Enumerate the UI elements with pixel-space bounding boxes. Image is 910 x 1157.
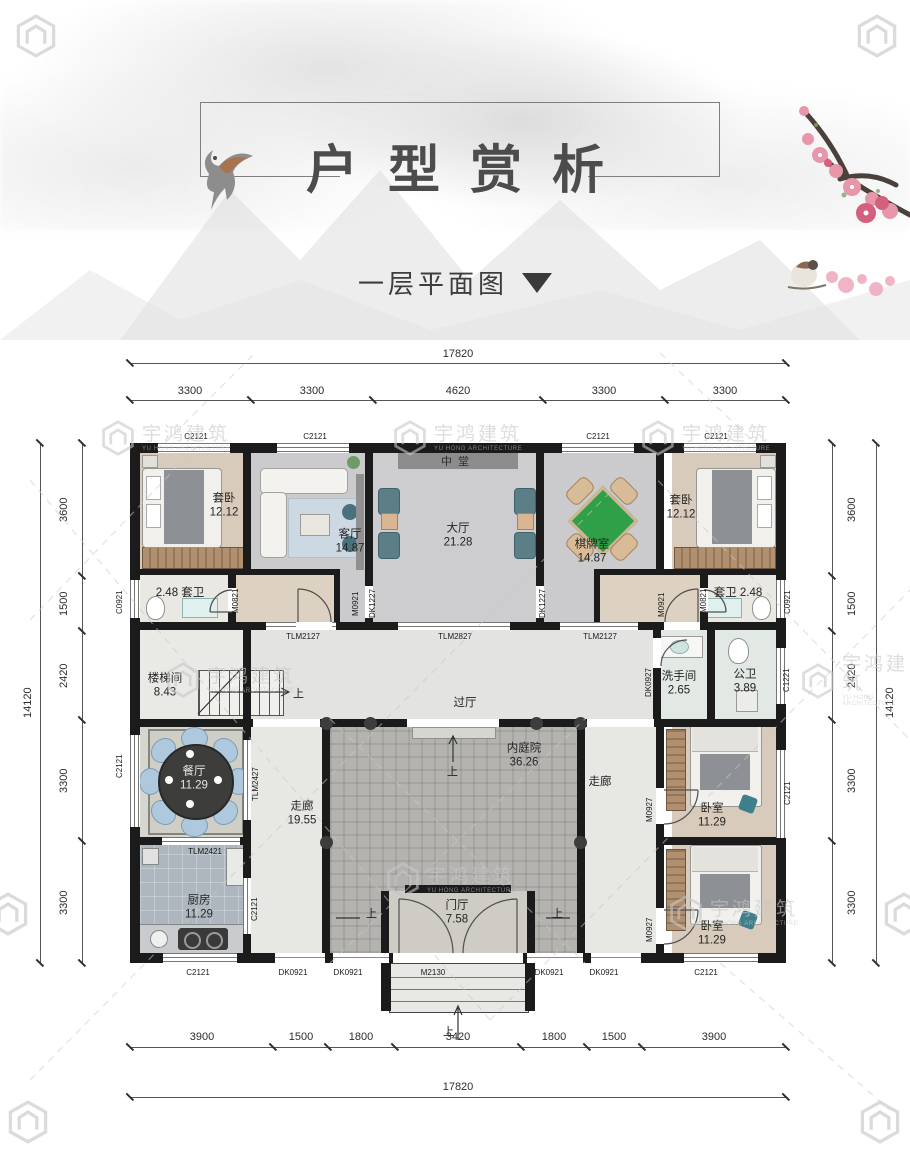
room-label-kitchen: 厨房11.29 <box>185 894 213 923</box>
slide-door-TLM2827 <box>398 622 510 630</box>
tag-door-DK0927: DK0927 <box>644 668 653 697</box>
door-gap-DK0927 <box>653 638 661 668</box>
wardrobe-right <box>674 547 776 569</box>
column <box>364 717 377 730</box>
tag-window-C2121: C2121 <box>694 968 718 977</box>
hall-chair <box>378 532 400 559</box>
watermark-logo-icon <box>14 14 58 58</box>
dim-left-total: 14120 <box>22 687 34 718</box>
slide-door-TLM2421 <box>162 837 240 845</box>
plate <box>165 776 173 784</box>
room-label-bedroom-right-top: 卧室11.29 <box>698 802 726 831</box>
wardrobe-bedroom-bottom <box>666 849 686 931</box>
room-label-suite-bedroom-right: 套卧12.12 <box>667 494 696 523</box>
dim-bot-4: 1800 <box>542 1031 566 1043</box>
hall-chair <box>378 488 400 515</box>
dim-right-2: 2420 <box>846 664 858 688</box>
dim-top-total: 17820 <box>443 348 474 360</box>
dim-line-bottom-segments <box>130 1047 786 1048</box>
sofa-back <box>260 468 348 494</box>
tag-window-C2121: C2121 <box>586 432 610 441</box>
opening-DK0921 <box>275 953 325 963</box>
dim-bot-0: 3900 <box>190 1031 214 1043</box>
pillow <box>146 504 161 528</box>
tag-window-C2121: C2121 <box>704 432 728 441</box>
dim-left-0: 3600 <box>58 498 70 522</box>
room-label-courtyard: 内庭院36.26 <box>507 742 542 771</box>
wall <box>656 837 786 845</box>
wall <box>334 575 340 622</box>
room-floor-corridor-left <box>251 727 322 953</box>
wardrobe-left <box>142 547 244 569</box>
watermark-logo-icon <box>6 1100 50 1144</box>
kitchen-sink <box>150 930 168 948</box>
hall-chair <box>514 488 536 515</box>
watermark-logo-icon <box>800 663 836 699</box>
door-gap-M0921 <box>664 622 700 630</box>
dim-line-bottom-total <box>130 1097 786 1098</box>
dim-line-top-segments <box>130 400 786 401</box>
coffee-table <box>300 514 330 536</box>
door-gap-M0927 <box>656 788 664 824</box>
dim-top-1: 3300 <box>300 385 324 397</box>
wall <box>707 630 715 719</box>
down-triangle-icon <box>522 273 552 293</box>
door-gap-M0927 <box>656 908 664 944</box>
pillow <box>757 476 772 500</box>
dim-bot-6: 3900 <box>702 1031 726 1043</box>
slide-door-TLM2427 <box>243 740 251 820</box>
room-label-hall: 大厅21.28 <box>444 522 473 551</box>
sink <box>706 598 742 618</box>
tag-door-M0921: M0921 <box>351 592 360 616</box>
dim-bot-1: 1500 <box>289 1031 313 1043</box>
up-mark-stair: 上 <box>293 685 304 701</box>
sink <box>182 598 218 618</box>
dim-line-left-segments <box>82 443 83 963</box>
dim-top-4: 3300 <box>713 385 737 397</box>
opening-courtyard <box>407 719 499 727</box>
plate <box>186 750 194 758</box>
bed-blanket <box>700 754 750 790</box>
toilet <box>728 638 749 664</box>
tag-door-TLM2827: TLM2827 <box>438 632 472 641</box>
dim-line-right-segments <box>832 443 833 963</box>
window-C0921 <box>130 580 140 618</box>
tag-door-M0821: M0821 <box>699 589 708 613</box>
tag-window-C2121: C2121 <box>303 432 327 441</box>
dim-line-top-total <box>130 363 786 364</box>
hall-side-table <box>517 513 534 530</box>
hall-side-table <box>381 513 398 530</box>
room-label-dining: 餐厅11.29 <box>180 765 208 794</box>
tag-door-M0927: M0927 <box>645 918 654 942</box>
room-label-stair: 楼梯间8.43 <box>148 672 183 701</box>
tag-opening-DK0921: DK0921 <box>590 968 619 977</box>
room-label-public-bath: 公卫3.89 <box>734 668 757 697</box>
pillow <box>757 504 772 528</box>
up-mark-entrance: 上 <box>443 1023 454 1039</box>
tag-window-C2121: C2121 <box>115 754 124 778</box>
room-label-bedroom-right-bottom: 卧室11.29 <box>698 920 726 949</box>
tag-door-M0927: M0927 <box>645 798 654 822</box>
wall <box>594 569 786 575</box>
tag-door-M0921: M0921 <box>657 593 666 617</box>
window-C2121 <box>130 735 140 827</box>
dim-bot-2: 1800 <box>349 1031 373 1043</box>
dim-right-3: 3300 <box>846 769 858 793</box>
stair-treads <box>198 670 284 716</box>
opening-DK0921 <box>527 953 583 963</box>
opening-DK0921 <box>591 953 641 963</box>
burner <box>206 932 223 949</box>
porch-step-line <box>391 977 525 978</box>
dim-left-4: 3300 <box>58 891 70 915</box>
porch-step-line <box>391 989 525 990</box>
tag-door-TLM2427: TLM2427 <box>251 767 260 801</box>
room-label-passage: 过厅 <box>454 696 477 710</box>
column <box>574 836 587 849</box>
door-gap-M2130 <box>393 953 523 963</box>
bed-blanket <box>164 470 204 544</box>
dim-right-4: 3300 <box>846 891 858 915</box>
tag-door-M2130: M2130 <box>421 968 445 977</box>
up-mark-courtyard: 上 <box>447 763 458 779</box>
bed-pillow-area <box>692 847 758 872</box>
burner <box>184 932 201 949</box>
tag-window-C2121: C2121 <box>250 897 259 921</box>
room-label-corridor-left: 走廊19.55 <box>288 800 317 829</box>
window-C2121 <box>562 443 634 453</box>
column <box>574 717 587 730</box>
window-C2121 <box>158 443 230 453</box>
room-label-suite-bedroom-left: 套卧12.12 <box>210 492 239 521</box>
dim-right-1: 1500 <box>846 592 858 616</box>
floor-vestibule-left <box>236 575 334 622</box>
tag-door-TLM2421: TLM2421 <box>188 847 222 856</box>
floorplan-poster: { "header": { "title": "户型赏析", "subtitle… <box>0 0 910 1157</box>
opening-corridor-right <box>587 719 654 727</box>
tag-door-TLM2127: TLM2127 <box>583 632 617 641</box>
watermark-logo-icon <box>0 892 30 936</box>
dim-left-3: 3300 <box>58 769 70 793</box>
nightstand <box>760 455 776 468</box>
tag-window-C2121: C2121 <box>783 781 792 805</box>
watermark-logo-icon <box>855 14 899 58</box>
bed-blanket <box>700 874 750 908</box>
floor-vestibule-right <box>600 575 700 622</box>
tag-door-M0821: M0821 <box>231 589 240 613</box>
subtitle: 一层平面图 <box>358 264 508 301</box>
wall <box>656 443 664 575</box>
tag-opening-DK0921: DK0921 <box>334 968 363 977</box>
up-mark-left-step: 上 <box>366 905 377 921</box>
tag-opening-DK0921: DK0921 <box>535 968 564 977</box>
tag-window-C1221: C1221 <box>782 668 791 692</box>
watermark-logo-icon <box>858 1100 902 1144</box>
room-label-corridor-right: 走廊 <box>589 775 612 789</box>
tag-opening-DK1227: DK1227 <box>538 589 547 618</box>
dim-line-right-total <box>876 443 877 963</box>
dim-right-0: 3600 <box>846 498 858 522</box>
window-C2121 <box>163 953 237 963</box>
wardrobe-bedroom-top <box>666 729 686 811</box>
column <box>320 717 333 730</box>
wall <box>405 885 511 893</box>
courtyard-step <box>412 727 496 739</box>
wall <box>130 443 140 963</box>
tag-window-C0921: C0921 <box>783 590 792 614</box>
dim-line-left-total <box>40 443 41 963</box>
door-gap-M0921 <box>296 622 332 630</box>
entrance-porch <box>389 963 529 1013</box>
room-label-chess: 棋牌室14.87 <box>575 538 610 567</box>
basin <box>670 640 689 654</box>
tag-window-C2121: C2121 <box>186 968 210 977</box>
room-floor-passage <box>251 630 653 719</box>
sofa-side <box>260 492 287 558</box>
room-label-suite-bath-right: 套卫 2.48 <box>714 586 763 600</box>
tag-door-TLM2127: TLM2127 <box>286 632 320 641</box>
tag-window-C2121: C2121 <box>184 432 208 441</box>
hall-chair <box>514 532 536 559</box>
window-C2121 <box>684 953 758 963</box>
wall <box>243 630 251 719</box>
wall <box>594 575 600 622</box>
dim-top-2: 4620 <box>446 385 470 397</box>
bird-illustration <box>195 140 265 220</box>
dim-right-total: 14120 <box>884 687 896 718</box>
wall <box>243 443 251 575</box>
room-label-foyer: 门厅7.58 <box>446 899 469 928</box>
up-mark-right-step: 上 <box>552 905 563 921</box>
hall-plaque: 中堂 <box>441 453 475 469</box>
room-label-suite-bath-left: 2.48 套卫 <box>156 586 205 600</box>
tag-window-C0921: C0921 <box>115 590 124 614</box>
tag-opening-DK0921: DK0921 <box>279 968 308 977</box>
dim-left-1: 1500 <box>58 592 70 616</box>
plate <box>186 800 194 808</box>
plant <box>347 456 360 469</box>
watermark-logo-icon <box>882 892 910 936</box>
porch-pier <box>381 963 391 1011</box>
opening-DK0921 <box>333 953 389 963</box>
nightstand <box>142 455 158 468</box>
column <box>530 717 543 730</box>
room-label-washroom: 洗手间2.65 <box>662 670 697 699</box>
appliance <box>142 848 159 865</box>
slide-door-TLM2127 <box>560 622 638 630</box>
porch-step-line <box>391 1001 525 1002</box>
dim-top-3: 3300 <box>592 385 616 397</box>
tag-opening-DK1227: DK1227 <box>368 589 377 618</box>
room-label-living: 客厅14.87 <box>336 528 365 557</box>
dim-top-0: 3300 <box>178 385 202 397</box>
bed-blanket <box>712 470 752 544</box>
dim-bot-5: 1500 <box>602 1031 626 1043</box>
fridge <box>226 848 244 886</box>
window-C2121 <box>684 443 756 453</box>
porch-pier <box>525 963 535 1011</box>
bed-pillow-area <box>692 727 758 752</box>
window-C2121 <box>277 443 349 453</box>
opening-corridor-left <box>253 719 320 727</box>
dim-bottom-total: 17820 <box>443 1081 474 1093</box>
plate <box>214 776 222 784</box>
pillow <box>146 476 161 500</box>
column <box>320 836 333 849</box>
subtitle-row: 一层平面图 <box>0 264 910 301</box>
dim-left-2: 2420 <box>58 664 70 688</box>
